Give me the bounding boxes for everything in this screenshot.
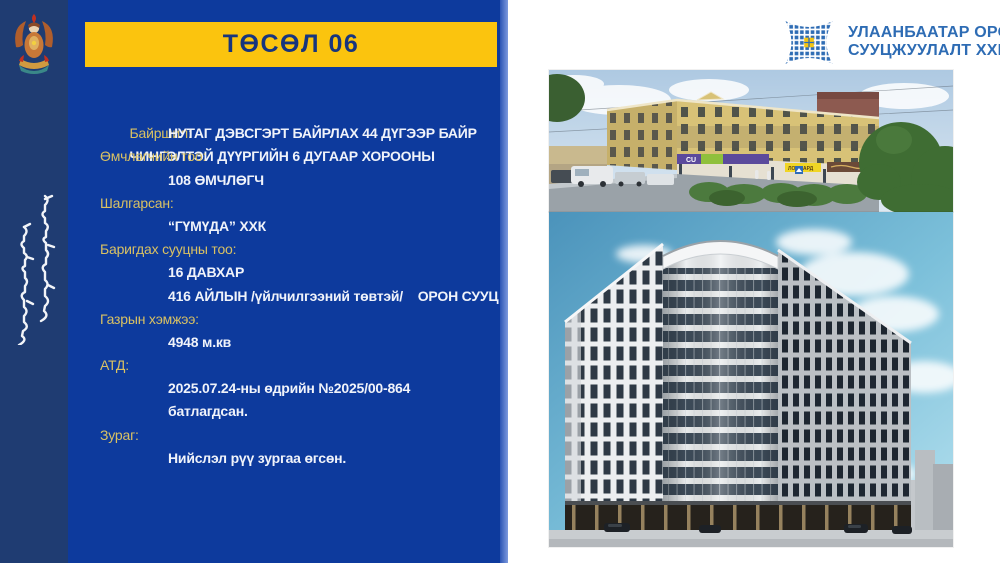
field-label: Зураг: bbox=[68, 424, 500, 447]
city-emblem-icon bbox=[9, 13, 59, 75]
org-logo: УЛААНБААТАР ОРОН СУУЦЖУУЛАЛТ ХХК bbox=[779, 19, 989, 67]
project-fields: Байршил: ЧИНГЭЛТЭЙ ДҮҮРГИЙН 6 ДУГААР ХОР… bbox=[68, 99, 500, 470]
field-value: батлагдсан. bbox=[68, 400, 500, 423]
title-banner: ТӨСӨЛ 06 bbox=[85, 22, 497, 67]
field-value: “ГҮМҮДА” ХХК bbox=[68, 215, 500, 238]
field-label: Баригдах сууцны тоо: bbox=[68, 238, 500, 261]
field-value: 108 ӨМЧЛӨГЧ bbox=[68, 169, 500, 192]
building-rendering-photo bbox=[549, 212, 953, 547]
org-logo-text: УЛААНБААТАР ОРОН СУУЦЖУУЛАЛТ ХХК bbox=[848, 24, 1000, 60]
field-value: 16 ДАВХАР bbox=[68, 261, 500, 284]
slide-canvas: ТӨСӨЛ 06 Байршил: ЧИНГЭЛТЭЙ ДҮҮРГИЙН 6 Д… bbox=[0, 0, 1000, 563]
field-value: Нийслэл рүү зургаа өгсөн. bbox=[68, 447, 500, 470]
org-name-line2: СУУЦЖУУЛАЛТ ХХК bbox=[848, 42, 1000, 60]
info-panel: ТӨСӨЛ 06 Байршил: ЧИНГЭЛТЭЙ ДҮҮРГИЙН 6 Д… bbox=[68, 0, 508, 563]
left-strip bbox=[0, 0, 68, 563]
org-name-line1: УЛААНБААТАР ОРОН bbox=[848, 24, 1000, 42]
field-label: Газрын хэмжээ: bbox=[68, 308, 500, 331]
org-logo-mark-icon bbox=[779, 19, 839, 66]
panel-edge-highlight bbox=[500, 0, 508, 563]
street-photo: CU ЛОМБАРД bbox=[549, 70, 953, 212]
page-title: ТӨСӨЛ 06 bbox=[223, 30, 360, 59]
field-row-location: Байршил: ЧИНГЭЛТЭЙ ДҮҮРГИЙН 6 ДУГААР ХОР… bbox=[68, 99, 500, 122]
field-value: 4948 м.кв bbox=[68, 331, 500, 354]
field-value: 2025.07.24-ны өдрийн №2025/00-864 bbox=[68, 377, 500, 400]
field-label: АТД: bbox=[68, 354, 500, 377]
cu-sign-text: CU bbox=[686, 157, 696, 164]
vertical-mongolian-script-icon bbox=[8, 193, 58, 345]
field-label: Шалгарсан: bbox=[68, 192, 500, 215]
field-value: 416 АЙЛЫН /үйлчилгээний төвтэй/ ОРОН СУУ… bbox=[68, 285, 500, 308]
